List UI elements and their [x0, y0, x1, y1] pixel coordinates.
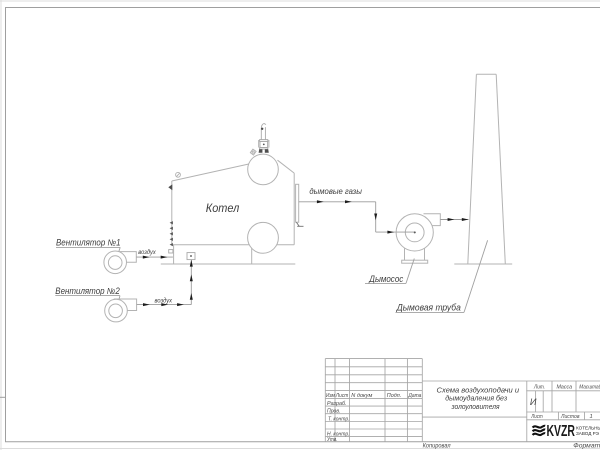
svg-text:золоуловителя: золоуловителя: [451, 402, 500, 411]
svg-text:N докум: N докум: [351, 393, 372, 399]
svg-text:Вентилятор №2: Вентилятор №2: [55, 286, 120, 296]
svg-text:Дымосос: Дымосос: [368, 274, 403, 284]
svg-text:Котел: Котел: [206, 201, 240, 215]
svg-text:КОТЕЛЬНЫЙ: КОТЕЛЬНЫЙ: [576, 424, 600, 431]
svg-text:ЗАВОД РЭ: ЗАВОД РЭ: [576, 431, 600, 436]
svg-text:KVZR: KVZR: [547, 423, 576, 440]
svg-text:Разраб.: Разраб.: [327, 401, 347, 407]
svg-text:Масштаб: Масштаб: [579, 385, 600, 391]
svg-text:Лист: Лист: [530, 414, 542, 420]
svg-text:Т. контр.: Т. контр.: [328, 416, 350, 422]
svg-text:1: 1: [590, 414, 593, 420]
svg-text:воздух: воздух: [155, 296, 173, 304]
svg-text:Дымовая труба: Дымовая труба: [396, 302, 461, 313]
svg-text:Листов: Листов: [560, 414, 579, 420]
svg-text:Копировал: Копировал: [423, 443, 451, 450]
svg-text:воздух: воздух: [138, 248, 156, 256]
svg-text:Вентилятор №1: Вентилятор №1: [56, 238, 121, 248]
svg-text:Формат А: Формат А: [573, 443, 600, 450]
svg-text:Утв.: Утв.: [326, 437, 337, 443]
svg-text:Лист: Лист: [335, 393, 349, 399]
svg-text:Лит.: Лит.: [533, 385, 545, 391]
svg-text:Подп.: Подп.: [387, 393, 402, 399]
svg-text:Изм: Изм: [326, 393, 335, 399]
svg-text:Масса: Масса: [557, 385, 573, 391]
svg-text:Пров.: Пров.: [327, 409, 341, 415]
svg-text:И: И: [530, 397, 537, 407]
svg-text:Дата: Дата: [408, 393, 422, 399]
svg-text:дымовые газы: дымовые газы: [309, 187, 362, 196]
